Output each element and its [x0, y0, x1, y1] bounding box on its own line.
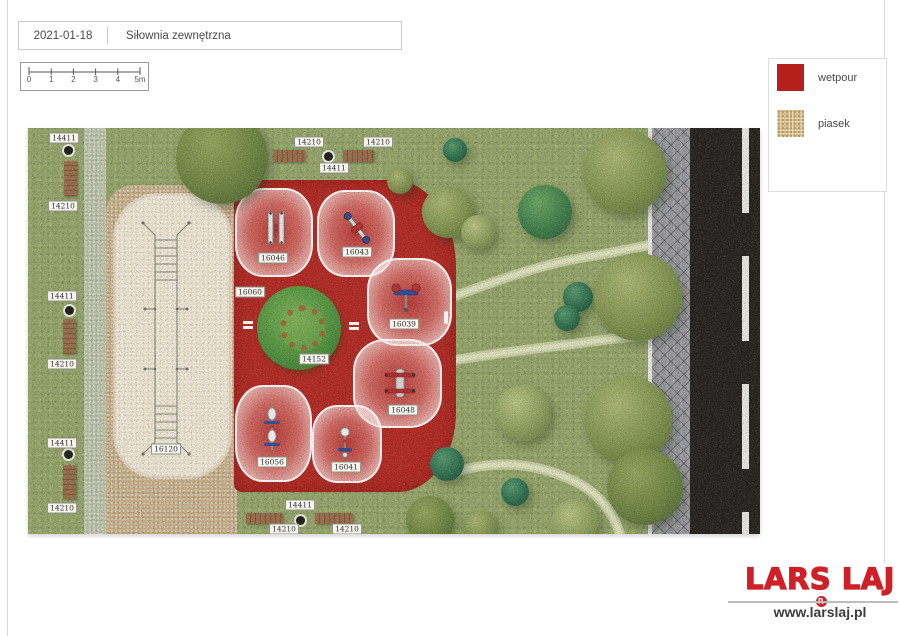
drawing-title: Siłownia zewnętrzna	[108, 30, 231, 42]
scale-tick-label: 5m	[134, 75, 145, 84]
item-label-14210: 14210	[48, 201, 78, 212]
item-label-14210: 14210	[47, 359, 77, 370]
scale-tick-label: 0	[27, 75, 31, 84]
item-label-16048: 16048	[388, 405, 418, 416]
trash-bin	[64, 450, 73, 459]
bench	[246, 513, 283, 524]
logo-text: LARS LAJ	[745, 562, 895, 596]
pull-station-icon	[250, 403, 294, 453]
tree	[387, 168, 413, 194]
wetpour-swatch-icon	[777, 64, 804, 91]
edge-marker	[243, 321, 253, 329]
road	[690, 128, 760, 534]
item-label-14411: 14411	[319, 163, 349, 174]
scale-tick-label: 4	[116, 75, 120, 84]
item-label-16039: 16039	[389, 319, 419, 330]
tree	[594, 253, 682, 341]
drawing-date: 2021-01-18	[19, 30, 107, 42]
bench	[315, 513, 353, 524]
tree	[518, 185, 572, 239]
scale-tick-label: 3	[93, 75, 97, 84]
item-label-16060: 16060	[235, 287, 265, 298]
title-block: 2021-01-18 Siłownia zewnętrzna	[18, 21, 402, 50]
scale-tick-label: 1	[49, 75, 53, 84]
trash-bin	[324, 152, 333, 161]
item-label-16056: 16056	[257, 457, 287, 468]
legend-item-wetpour: wetpour	[777, 64, 857, 91]
item-label-14210: 14210	[47, 503, 77, 514]
bench	[343, 150, 374, 162]
road-lane-markings	[742, 128, 749, 534]
tree	[461, 215, 495, 249]
footer-divider	[728, 601, 898, 603]
item-label-14411: 14411	[47, 438, 77, 449]
tree	[495, 385, 551, 441]
tree	[583, 130, 667, 214]
parallel-bars-icon	[254, 203, 298, 253]
tree	[554, 305, 580, 331]
edge-marker	[444, 311, 448, 324]
bench-icon	[378, 359, 422, 409]
tree	[501, 478, 529, 506]
item-label-14411: 14411	[49, 133, 79, 144]
site-plan: 1441114210144111421014411142101421014210…	[28, 128, 760, 534]
tree	[430, 447, 464, 481]
twister-icon	[335, 203, 379, 253]
item-label-14411: 14411	[47, 291, 77, 302]
item-label-14210: 14210	[269, 524, 299, 535]
item-label-14210: 14210	[363, 137, 393, 148]
wetpour-label: wetpour	[818, 72, 857, 84]
piasek-label: piasek	[818, 118, 850, 130]
item-label-16043: 16043	[342, 247, 372, 258]
climbing-frame-16120-icon	[138, 220, 198, 470]
bench	[273, 150, 305, 162]
plan-sheet: 2021-01-18 Siłownia zewnętrzna 012345m w…	[0, 0, 900, 636]
trash-bin	[65, 306, 74, 315]
legend: wetpour piasek	[768, 58, 887, 192]
scale-tick-label: 2	[71, 75, 75, 84]
trash-bin	[64, 146, 73, 155]
item-label-16041: 16041	[331, 462, 361, 473]
item-label-14411: 14411	[285, 500, 315, 511]
tree	[607, 449, 683, 525]
tree	[443, 138, 467, 162]
tree-ring-mulch	[280, 305, 326, 351]
edge-marker	[349, 322, 359, 330]
item-label-16120: 16120	[151, 444, 181, 455]
bench	[63, 319, 76, 354]
piasek-swatch-icon	[777, 110, 804, 137]
page-rule-left	[7, 0, 8, 636]
scale-ruler-icon	[21, 65, 146, 77]
legend-item-piasek: piasek	[777, 110, 850, 137]
website-url: www.larslaj.pl	[745, 604, 895, 620]
scale-bar: 012345m	[20, 62, 149, 91]
item-label-16046: 16046	[258, 253, 288, 264]
bench	[63, 465, 76, 499]
item-label-14210: 14210	[294, 137, 324, 148]
item-label-14152: 14152	[299, 354, 329, 365]
bench	[64, 161, 77, 196]
chest-press-icon	[384, 275, 428, 325]
item-label-14210: 14210	[332, 524, 362, 535]
